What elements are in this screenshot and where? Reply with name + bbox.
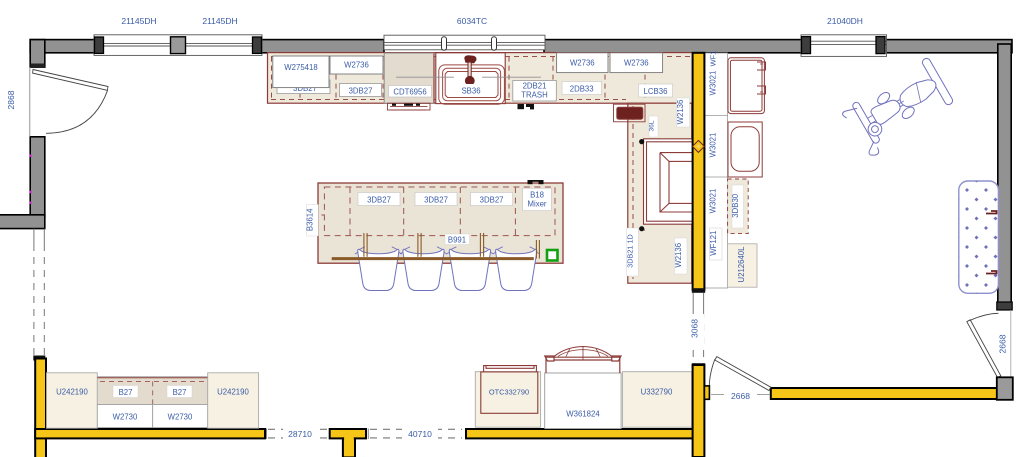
svg-text:W2730: W2730 <box>113 413 138 422</box>
svg-text:W3021: W3021 <box>709 71 718 96</box>
svg-text:28710: 28710 <box>288 429 312 439</box>
svg-text:6034TC: 6034TC <box>457 16 487 26</box>
svg-text:B18: B18 <box>530 191 544 200</box>
svg-text:CDT6956: CDT6956 <box>393 88 426 97</box>
svg-text:W361824: W361824 <box>566 410 600 419</box>
svg-text:3DB27: 3DB27 <box>349 87 373 96</box>
svg-text:WF121: WF121 <box>709 231 718 256</box>
svg-text:B3614: B3614 <box>306 208 315 231</box>
svg-text:3DB27: 3DB27 <box>424 196 448 205</box>
svg-text:3DB30: 3DB30 <box>731 193 740 218</box>
svg-text:3DB27: 3DB27 <box>480 196 504 205</box>
svg-text:40710: 40710 <box>408 429 432 439</box>
svg-text:36L: 36L <box>649 120 656 131</box>
svg-text:21040DH: 21040DH <box>827 16 863 26</box>
svg-text:B991: B991 <box>448 236 466 245</box>
svg-text:3DB21 1D: 3DB21 1D <box>626 234 635 268</box>
svg-text:2DB21: 2DB21 <box>523 82 547 91</box>
svg-text:21145DH: 21145DH <box>202 16 237 26</box>
svg-text:U212640L: U212640L <box>737 246 746 283</box>
svg-text:W2136: W2136 <box>676 100 685 125</box>
svg-text:3068: 3068 <box>690 319 700 338</box>
svg-text:WF1: WF1 <box>709 51 718 67</box>
svg-text:W2736: W2736 <box>344 61 369 70</box>
svg-text:Mixer: Mixer <box>527 200 546 209</box>
svg-text:B27: B27 <box>119 388 133 397</box>
svg-text:LCB36: LCB36 <box>644 87 668 96</box>
svg-text:SB36: SB36 <box>461 87 480 96</box>
svg-text:W275418: W275418 <box>284 63 317 72</box>
svg-text:2868: 2868 <box>6 90 16 109</box>
svg-text:W2736: W2736 <box>624 59 649 68</box>
svg-text:21145DH: 21145DH <box>121 16 156 26</box>
svg-text:2668: 2668 <box>998 334 1008 353</box>
svg-text:3DB27: 3DB27 <box>367 196 391 205</box>
svg-text:2DB33: 2DB33 <box>570 85 594 94</box>
svg-text:U242190: U242190 <box>56 388 88 397</box>
svg-text:OTC332790: OTC332790 <box>489 388 529 397</box>
svg-text:U332790: U332790 <box>641 388 673 397</box>
svg-text:W2736: W2736 <box>570 59 595 68</box>
svg-text:W2730: W2730 <box>168 413 193 422</box>
svg-text:W3021: W3021 <box>709 133 718 158</box>
svg-text:B27: B27 <box>173 388 187 397</box>
svg-text:2668: 2668 <box>731 391 750 401</box>
svg-text:TRASH: TRASH <box>521 91 547 100</box>
svg-text:U242190: U242190 <box>217 388 249 397</box>
svg-text:W3021: W3021 <box>709 189 718 214</box>
svg-text:W2136: W2136 <box>674 243 683 268</box>
